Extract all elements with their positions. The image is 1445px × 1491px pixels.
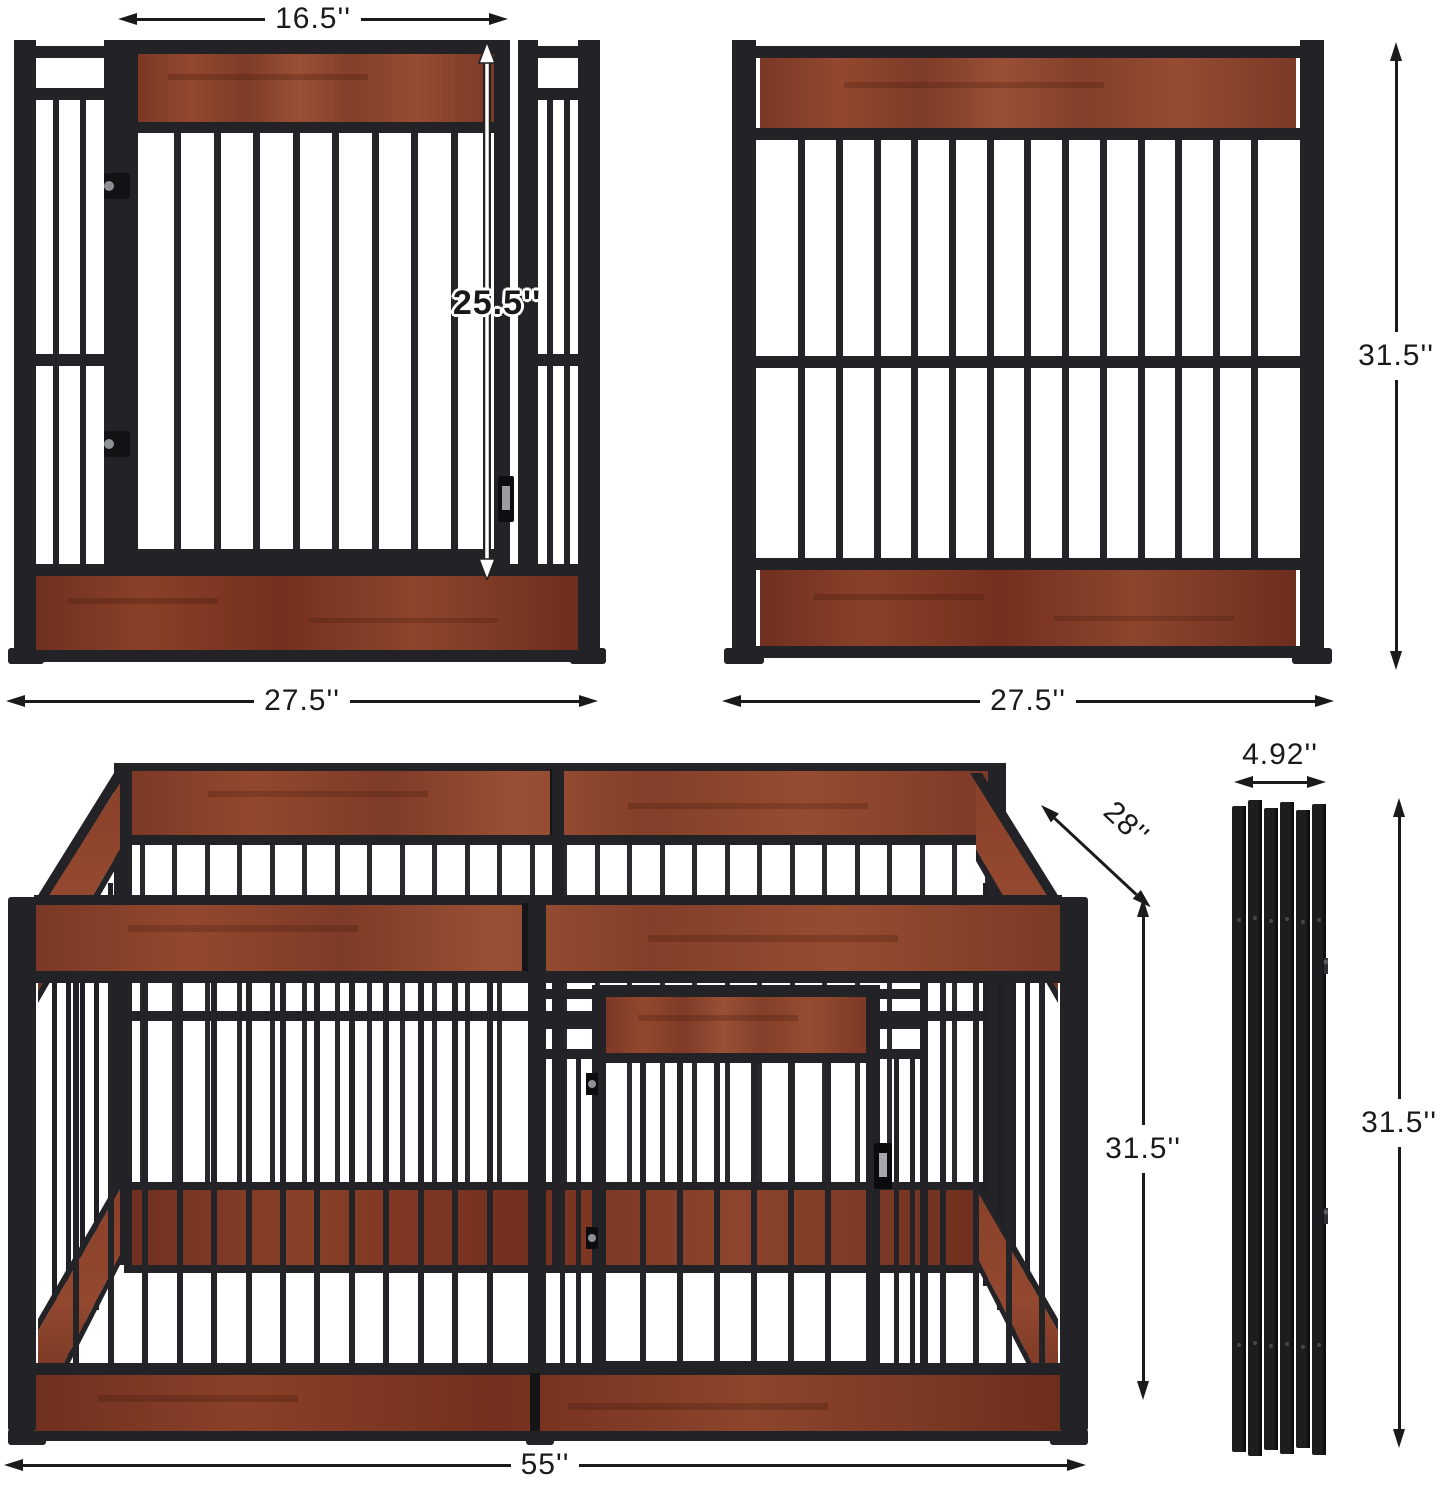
top-wood-board (756, 58, 1300, 140)
dim-door-height-label: 25.5'' (437, 284, 557, 323)
front-left-post (8, 897, 36, 1431)
dim-door-width: 16.5'' (118, 4, 508, 34)
door-bars (174, 133, 458, 549)
door-wood-header (138, 54, 494, 122)
right-side-wall (970, 773, 1064, 1425)
dim-side-panel-height-label: 31.5'' (1358, 332, 1434, 380)
side-panel-drawing (724, 38, 1332, 668)
arrow-up-icon (1393, 798, 1405, 817)
dim-folded-height-label: 31.5'' (1361, 1099, 1437, 1147)
dim-folded-width: 4.92'' (1224, 740, 1336, 788)
arrow-right-icon (1315, 695, 1334, 707)
front-bars-left (73, 983, 493, 1365)
arrow-right-icon (1067, 1459, 1086, 1471)
left-section (36, 46, 104, 568)
mid-rail (756, 356, 1300, 368)
product-dimension-diagram: 16.5'' 25.5'' 27.5'' 27.5'' 31.5'' (0, 0, 1445, 1491)
arrow-up-icon (1390, 42, 1402, 61)
dim-pen-width-label: 55'' (511, 1450, 580, 1480)
dim-side-panel-width-label: 27.5'' (980, 686, 1076, 716)
dim-door-width-label: 16.5'' (265, 4, 361, 34)
front-panel-drawing (8, 38, 606, 668)
dim-side-panel-width: 27.5'' (722, 686, 1334, 716)
arrow-right-icon (579, 695, 598, 707)
dim-folded-height: 31.5'' (1352, 798, 1445, 1448)
folded-slats (1232, 800, 1326, 1456)
front-door-wood-header (606, 997, 866, 1053)
dim-side-panel-height: 31.5'' (1349, 42, 1443, 670)
arrow-down-icon (1390, 651, 1402, 670)
side-panel-view (724, 38, 1332, 668)
top-rail (756, 46, 1300, 58)
dim-pen-height-label: 31.5'' (1105, 1125, 1181, 1173)
front-top-wood (34, 905, 1062, 971)
assembled-pen-view (8, 763, 1088, 1445)
front-bottom-wood (34, 1375, 1062, 1431)
arrow-left-icon (6, 695, 25, 707)
front-panel-view (8, 38, 606, 668)
front-middle-post (528, 897, 546, 1421)
assembled-pen-drawing (8, 763, 1088, 1445)
folded-panels-view (1232, 800, 1328, 1460)
arrow-down-icon (1393, 1429, 1405, 1448)
bottom-wood-board (756, 558, 1300, 658)
arrow-down-icon (1137, 1381, 1149, 1400)
bottom-wood-board (14, 564, 600, 662)
front-wall (8, 895, 1088, 1445)
arrow-left-icon (118, 13, 137, 25)
dim-pen-height: 31.5'' (1096, 898, 1190, 1400)
panel-bars (798, 140, 1258, 558)
front-right-post (1060, 897, 1088, 1431)
dim-folded-width-label: 4.92'' (1242, 740, 1318, 770)
arrow-up-icon (1137, 898, 1149, 917)
arrow-left-icon (4, 1459, 23, 1471)
dim-front-panel-width-label: 27.5'' (254, 686, 350, 716)
dim-front-panel-width: 27.5'' (6, 686, 598, 716)
arrow-right-icon (1307, 776, 1326, 788)
arrow-left-icon (722, 695, 741, 707)
folded-panels-drawing (1232, 800, 1328, 1460)
arrow-right-icon (489, 13, 508, 25)
dim-pen-depth-label: 28'' (1096, 795, 1155, 853)
arrow-left-icon (1234, 776, 1253, 788)
dim-pen-width: 55'' (4, 1448, 1086, 1482)
